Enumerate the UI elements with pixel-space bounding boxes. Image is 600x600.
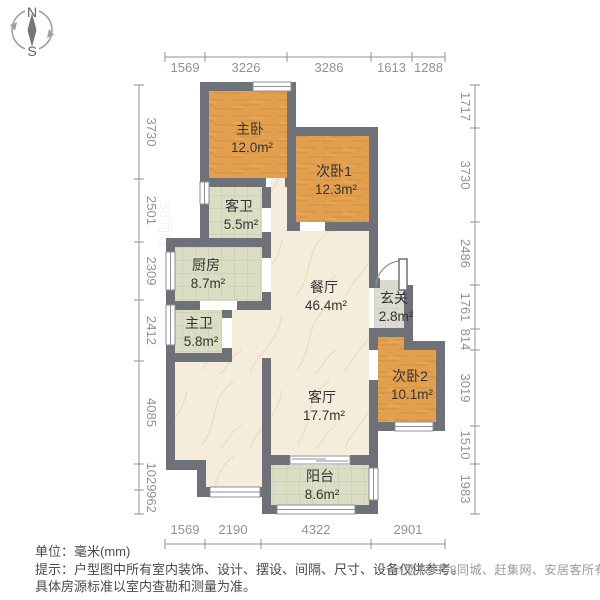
room-area-keting: 17.7m² [303, 408, 346, 423]
room-name-zhuwei: 主卫 [185, 315, 213, 331]
footer-unit: 单位：毫米(mm) [35, 541, 130, 560]
room-area-ciwo2: 10.1m² [391, 387, 434, 402]
room-area-kewei: 5.5m² [224, 217, 259, 232]
dimensions-left: 373025012309241240851029962 [134, 85, 159, 514]
room-name-ciwo1: 次卧1 [316, 163, 352, 179]
wall [369, 337, 378, 350]
wall [237, 301, 271, 310]
compass-icon: NS [10, 4, 54, 59]
room-area-yangtai: 8.6m² [305, 487, 340, 502]
wall [287, 127, 378, 136]
wall [262, 247, 271, 258]
floor-ciwo1 [296, 136, 369, 222]
dim-label-right-6: 1510 [458, 431, 473, 460]
dim-label-right-2: 2486 [458, 239, 473, 268]
dim-label-bottom-3: 2901 [394, 522, 423, 537]
dim-label-bottom-2: 4322 [302, 522, 331, 537]
sliding-door-icon [290, 456, 350, 464]
dim-label-top-4: 1288 [414, 60, 443, 75]
room-name-chufang: 厨房 [192, 257, 220, 273]
wall [325, 222, 378, 231]
floor-hall-patch [232, 353, 262, 363]
room-name-kewei: 客卫 [225, 198, 253, 214]
wall [166, 353, 232, 362]
wall [436, 341, 445, 431]
room-area-canting: 46.4m² [305, 298, 348, 313]
footer-copyright: © 版权归58同城、赶集网、安居客所有 [392, 561, 600, 578]
dim-label-right-1: 3730 [458, 161, 473, 190]
entrance-door-icon [376, 259, 407, 290]
room-name-zhuwo: 主卧 [236, 121, 264, 137]
dim-label-left-6: 962 [144, 491, 159, 513]
wall [369, 136, 378, 278]
wall [369, 431, 378, 465]
wall [285, 178, 296, 187]
dim-label-top-0: 1569 [171, 60, 200, 75]
dim-label-left-5: 1029 [144, 463, 159, 492]
wall [222, 310, 232, 318]
dim-label-left-2: 2309 [144, 257, 159, 286]
floor-chufang [175, 247, 262, 301]
room-area-zhuwei: 5.8m² [184, 334, 219, 349]
dim-label-right-5: 3019 [458, 374, 473, 403]
floorplan-page: 58同城58同城58同城58同城主卧12.0m²次卧112.3m²客卫5.5m²… [0, 0, 600, 600]
dim-label-bottom-0: 1569 [171, 522, 200, 537]
dim-label-right-7: 1983 [458, 475, 473, 504]
dimensions-right: 1717373024861761814301915101983 [458, 85, 480, 514]
room-area-zhuwo: 12.0m² [231, 140, 274, 155]
room-name-ciwo2: 次卧2 [392, 368, 428, 384]
dim-label-top-2: 3286 [315, 60, 344, 75]
floor-plan-canvas: 58同城58同城58同城58同城主卧12.0m²次卧112.3m²客卫5.5m²… [0, 0, 600, 600]
compass-north-label: N [27, 4, 37, 20]
room-name-xuanguan: 玄关 [380, 290, 408, 306]
wall [369, 328, 413, 337]
wall [166, 238, 271, 247]
room-name-yangtai: 阳台 [306, 468, 334, 484]
wall [200, 178, 266, 187]
wall [369, 278, 380, 288]
dim-label-right-3: 1761 [458, 293, 473, 322]
footer-tip-line2: 具体房源标准以室内查勘和测量为准。 [35, 576, 256, 595]
room-area-xuanguan: 2.8m² [379, 309, 414, 324]
dim-label-right-4: 814 [458, 329, 473, 351]
wall [262, 455, 290, 465]
dim-label-left-3: 2412 [144, 316, 159, 345]
compass-south-label: S [27, 43, 36, 59]
dim-label-left-1: 2501 [144, 196, 159, 225]
dim-label-left-4: 4085 [144, 398, 159, 427]
dim-label-top-3: 1613 [377, 60, 406, 75]
wall [287, 222, 300, 231]
wall [287, 82, 296, 231]
wall [200, 91, 209, 238]
dimensions-top: 15693226328616131288 [165, 52, 445, 75]
dim-label-right-0: 1717 [458, 92, 473, 121]
dim-label-left-0: 3730 [144, 118, 159, 147]
wall [262, 187, 271, 208]
dim-label-bottom-1: 2190 [219, 522, 248, 537]
room-name-keting: 客厅 [308, 389, 336, 405]
dimensions-bottom: 1569219043222901 [165, 522, 445, 549]
room-area-chufang: 8.7m² [191, 276, 226, 291]
room-area-ciwo1: 12.3m² [315, 182, 358, 197]
dim-label-top-1: 3226 [232, 60, 261, 75]
room-name-canting: 餐厅 [310, 279, 338, 295]
